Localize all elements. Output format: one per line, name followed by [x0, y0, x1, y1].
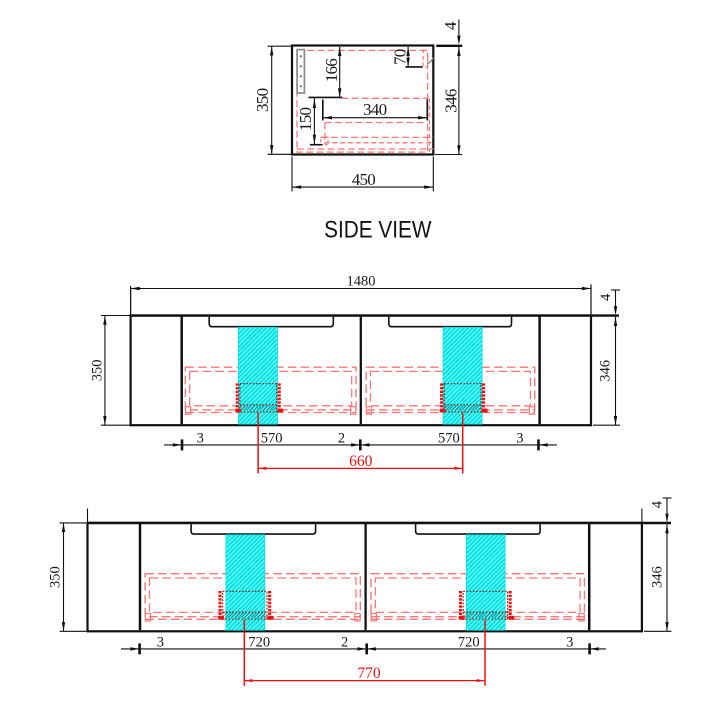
svg-text:770: 770: [357, 665, 381, 682]
svg-text:660: 660: [349, 453, 373, 470]
svg-text:2: 2: [341, 635, 348, 651]
svg-text:350: 350: [90, 360, 106, 382]
svg-text:720: 720: [248, 635, 270, 651]
svg-text:1480: 1480: [347, 274, 376, 290]
svg-text:70: 70: [390, 49, 409, 65]
svg-text:346: 346: [441, 89, 460, 113]
svg-text:340: 340: [363, 100, 387, 119]
svg-text:2: 2: [338, 431, 345, 447]
svg-text:4: 4: [598, 293, 614, 301]
svg-text:3: 3: [516, 431, 523, 447]
svg-text:350: 350: [47, 566, 63, 588]
svg-text:SIDE VIEW: SIDE VIEW: [324, 216, 431, 243]
svg-text:450: 450: [352, 170, 376, 189]
svg-text:150: 150: [296, 108, 315, 132]
svg-text:346: 346: [649, 566, 665, 588]
svg-text:570: 570: [261, 431, 283, 447]
svg-text:720: 720: [458, 635, 480, 651]
svg-text:346: 346: [598, 360, 614, 382]
svg-text:3: 3: [197, 431, 204, 447]
svg-text:350: 350: [253, 88, 272, 112]
svg-text:570: 570: [438, 431, 460, 447]
svg-text:4: 4: [650, 500, 666, 508]
svg-text:3: 3: [157, 635, 164, 651]
svg-text:166: 166: [322, 59, 341, 83]
svg-text:4: 4: [441, 21, 460, 30]
svg-text:3: 3: [566, 635, 573, 651]
